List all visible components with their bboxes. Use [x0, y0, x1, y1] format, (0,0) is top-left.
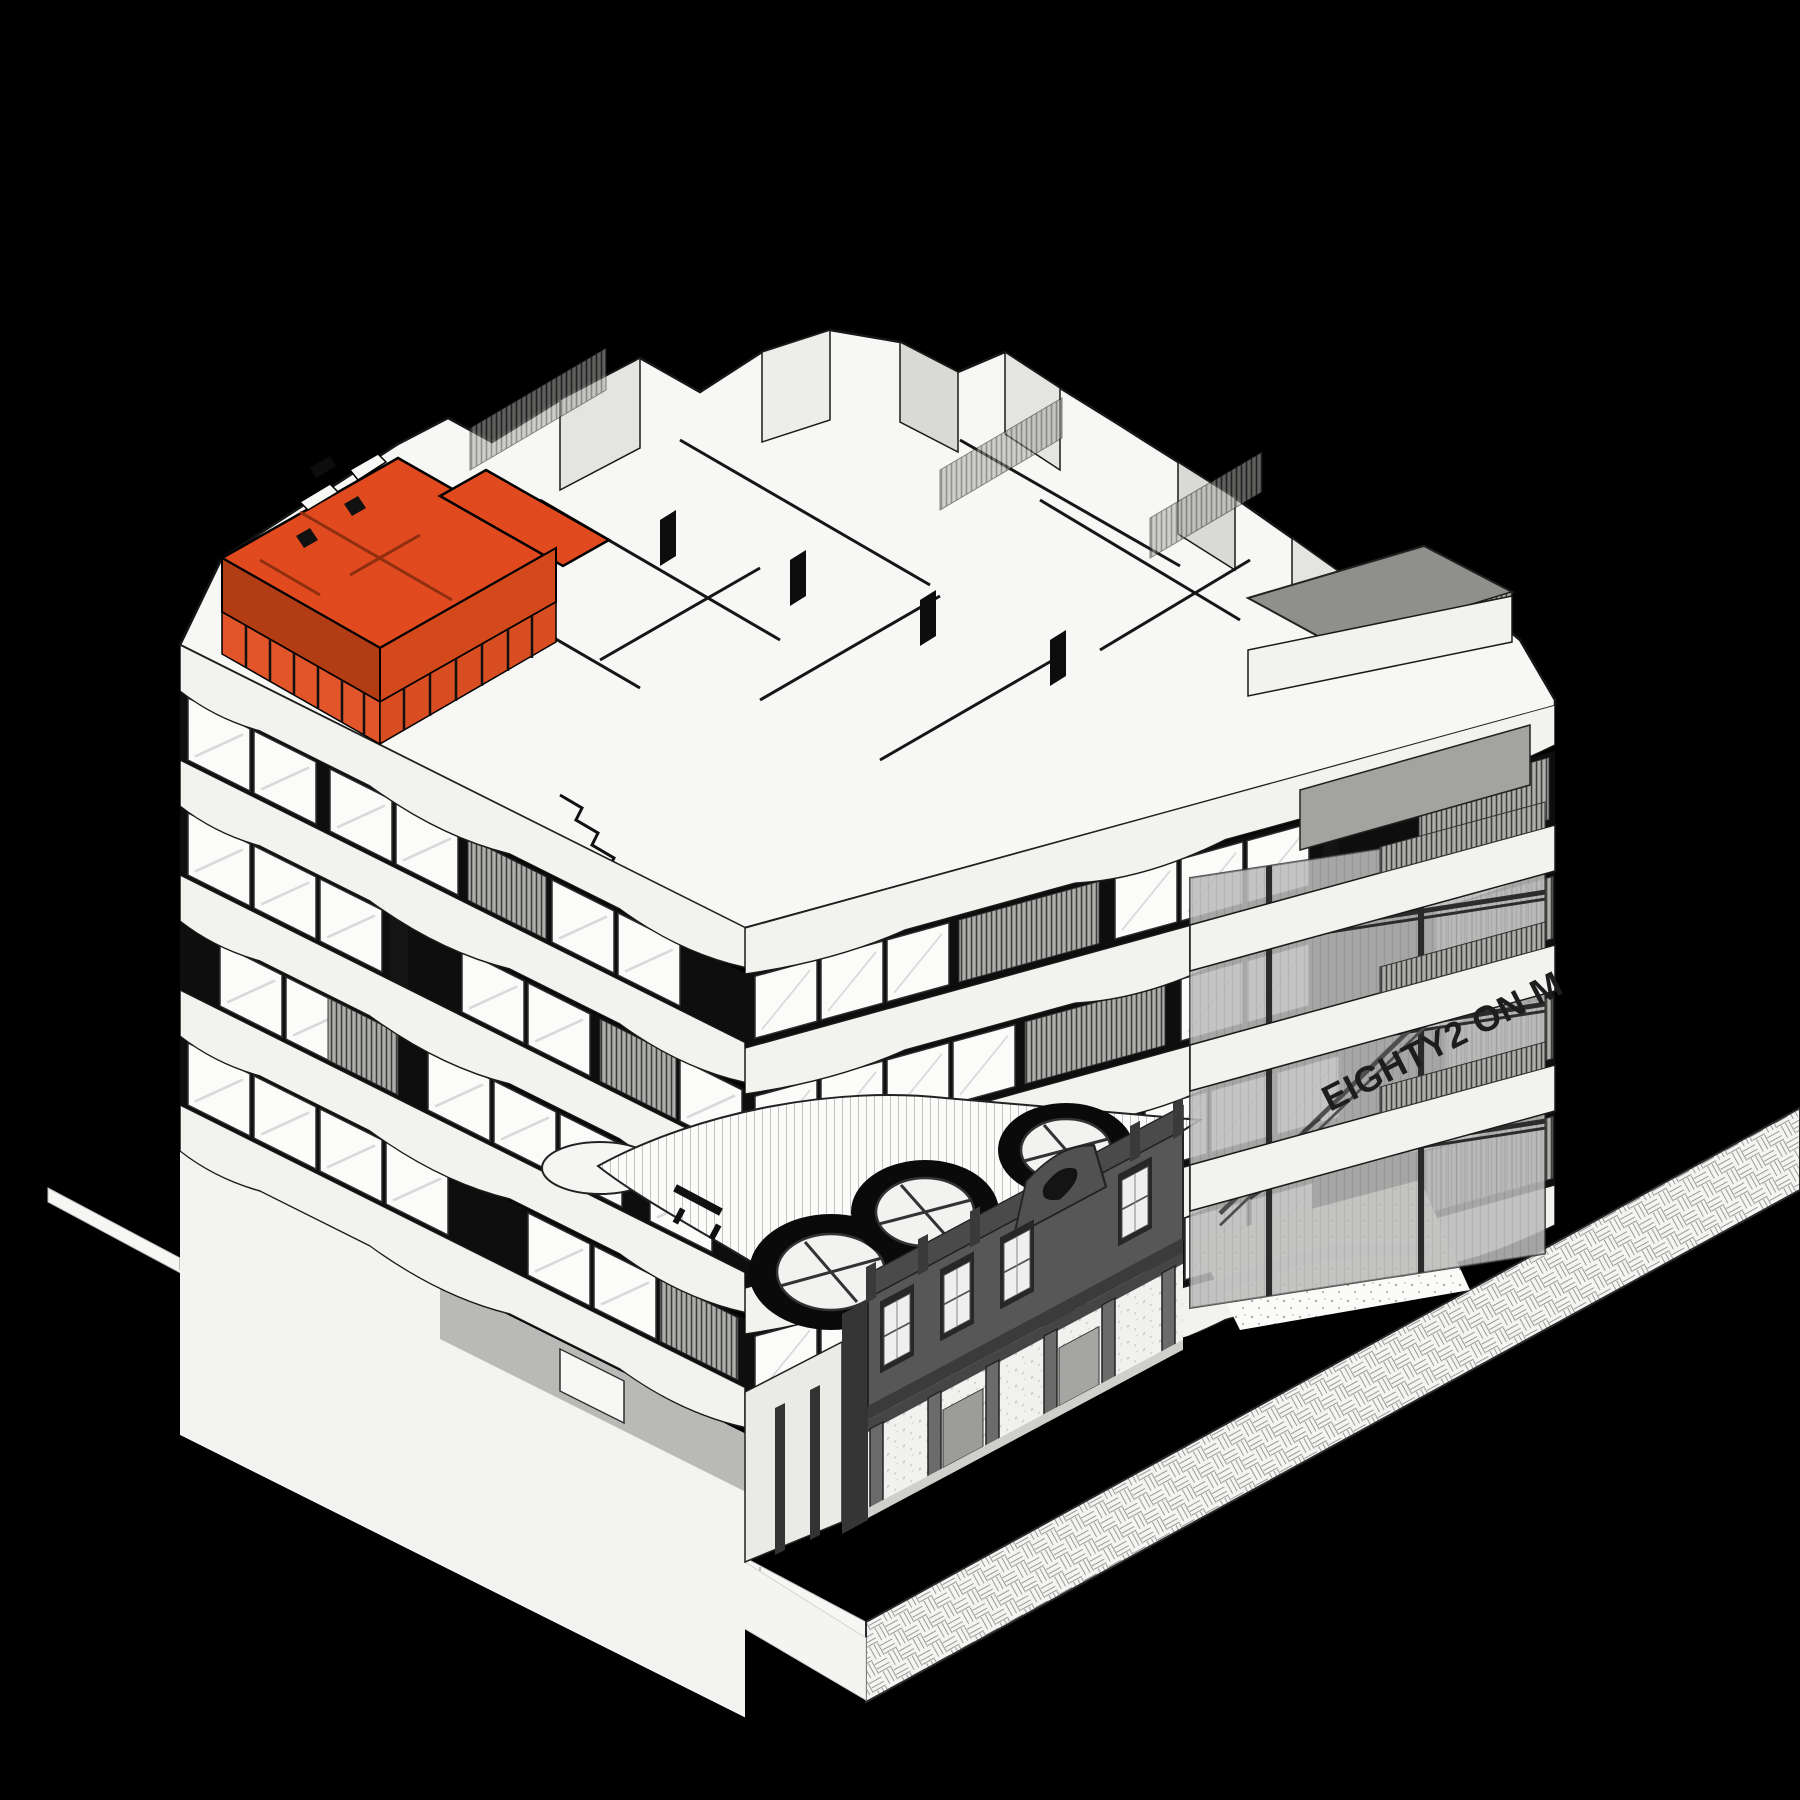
- heritage-side-face: [842, 1300, 868, 1534]
- building-axonometric: EIGHTY2 ON M: [0, 0, 1800, 1800]
- building-explorer-canvas: EIGHTY2 ON M: [0, 0, 1800, 1800]
